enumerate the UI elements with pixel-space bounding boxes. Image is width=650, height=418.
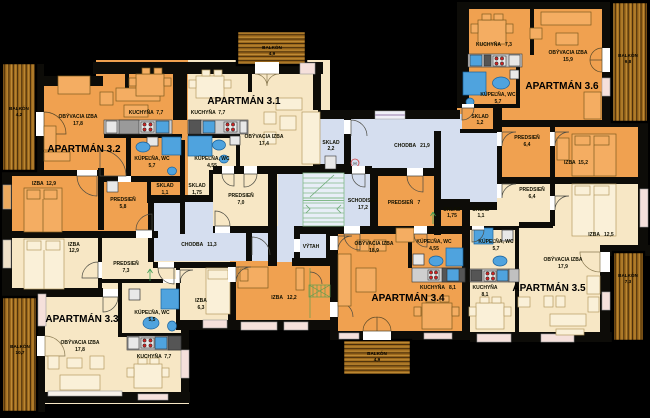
svg-text:BALKÓN: BALKÓN <box>262 43 282 50</box>
svg-text:PREDSIEŇ: PREDSIEŇ <box>228 191 254 199</box>
svg-text:PREDSIEŇ 7: PREDSIEŇ 7 <box>388 198 421 206</box>
svg-text:KÚPEĽŇA, WC: KÚPEĽŇA, WC <box>478 237 514 245</box>
svg-text:15,9: 15,9 <box>563 57 573 63</box>
svg-text:6,4: 6,4 <box>524 142 531 148</box>
svg-text:5,5: 5,5 <box>149 317 156 323</box>
svg-text:KUCHYŇA 7,3: KUCHYŇA 7,3 <box>476 40 512 48</box>
svg-text:PREDSIEŇ: PREDSIEŇ <box>514 133 540 141</box>
svg-text:CHODBA 21,9: CHODBA 21,9 <box>394 143 430 149</box>
svg-text:BALKÓN: BALKÓN <box>618 271 638 278</box>
svg-text:APARTMÁN 3.1: APARTMÁN 3.1 <box>207 94 281 107</box>
svg-text:KUCHYŇA: KUCHYŇA <box>473 283 498 291</box>
svg-text:1,1: 1,1 <box>162 190 169 196</box>
svg-text:KUCHYŇA 7,7: KUCHYŇA 7,7 <box>137 352 172 360</box>
svg-text:APARTMÁN 3.4: APARTMÁN 3.4 <box>371 291 445 304</box>
svg-text:1,2: 1,2 <box>477 120 484 126</box>
svg-text:4,55: 4,55 <box>429 246 439 252</box>
svg-text:7,3: 7,3 <box>625 279 632 284</box>
svg-text:SKLAD: SKLAD <box>188 183 206 189</box>
svg-text:7,0: 7,0 <box>238 200 245 206</box>
svg-text:KÚPEĽŇA, WC: KÚPEĽŇA, WC <box>134 154 170 162</box>
svg-text:7,3: 7,3 <box>123 268 130 274</box>
svg-text:17,8: 17,8 <box>75 347 85 353</box>
svg-text:8,1: 8,1 <box>482 292 489 298</box>
svg-text:4,9: 4,9 <box>269 51 276 56</box>
svg-text:1,1: 1,1 <box>478 213 485 219</box>
svg-text:APARTMÁN 3.3: APARTMÁN 3.3 <box>45 312 119 325</box>
svg-text:17,4: 17,4 <box>259 141 269 147</box>
svg-text:4,9: 4,9 <box>374 357 381 362</box>
svg-text:17,2: 17,2 <box>358 205 368 211</box>
svg-text:VÝTAH: VÝTAH <box>303 243 320 250</box>
svg-text:OBÝVACIA IZBA: OBÝVACIA IZBA <box>544 256 583 263</box>
svg-text:17,8: 17,8 <box>73 121 83 127</box>
svg-text:APARTMÁN 3.5: APARTMÁN 3.5 <box>512 281 586 294</box>
svg-text:17,9: 17,9 <box>558 264 568 270</box>
svg-text:BALKÓN: BALKÓN <box>367 349 387 356</box>
svg-text:KUCHYŇA 7,7: KUCHYŇA 7,7 <box>191 108 226 116</box>
svg-text:H: H <box>353 161 356 166</box>
svg-text:1,75: 1,75 <box>192 190 202 196</box>
svg-text:APARTMÁN 3.2: APARTMÁN 3.2 <box>47 142 121 155</box>
svg-text:KÚPEĽŇA, WC: KÚPEĽŇA, WC <box>416 237 452 245</box>
svg-text:6,4: 6,4 <box>529 194 536 200</box>
svg-text:5,7: 5,7 <box>495 99 502 105</box>
svg-text:PREDSIEŇ: PREDSIEŇ <box>519 185 545 193</box>
svg-text:OBÝVACIA IZBA: OBÝVACIA IZBA <box>549 49 588 56</box>
svg-text:4,2: 4,2 <box>16 112 23 117</box>
svg-text:5,8: 5,8 <box>120 204 127 210</box>
svg-text:BALKÓN: BALKÓN <box>9 104 29 111</box>
svg-text:KUCHYŇA 8,1: KUCHYŇA 8,1 <box>420 283 456 291</box>
svg-text:BALKÓN: BALKÓN <box>10 342 30 349</box>
svg-text:IZBA: IZBA <box>195 298 207 304</box>
svg-text:5,7: 5,7 <box>149 163 156 169</box>
svg-text:PREDSIEŇ: PREDSIEŇ <box>113 259 139 267</box>
svg-text:SCHODISKO: SCHODISKO <box>348 198 378 204</box>
svg-text:6,3: 6,3 <box>198 305 205 311</box>
svg-text:APARTMÁN 3.6: APARTMÁN 3.6 <box>525 79 599 92</box>
svg-text:10,7: 10,7 <box>16 350 25 355</box>
svg-text:IZBA 12,5: IZBA 12,5 <box>588 232 614 238</box>
svg-text:CHODBA 11,3: CHODBA 11,3 <box>181 242 217 248</box>
svg-text:IZBA 12,2: IZBA 12,2 <box>271 295 297 301</box>
svg-text:12,9: 12,9 <box>69 248 79 254</box>
svg-text:IZBA 12,9: IZBA 12,9 <box>32 181 56 187</box>
svg-text:SKLAD: SKLAD <box>156 183 174 189</box>
svg-text:KÚPEĽŇA, WC: KÚPEĽŇA, WC <box>480 90 516 98</box>
svg-text:4,55: 4,55 <box>207 163 217 169</box>
svg-text:OBÝVACIA IZBA: OBÝVACIA IZBA <box>245 133 284 140</box>
svg-text:PREDSIEŇ: PREDSIEŇ <box>110 195 136 203</box>
svg-text:BALKÓN: BALKÓN <box>618 51 638 58</box>
svg-text:KÚPEĽŇA, WC: KÚPEĽŇA, WC <box>194 154 230 162</box>
svg-text:KUCHYŇA 7,7: KUCHYŇA 7,7 <box>129 108 164 116</box>
svg-text:OBÝVACIA IZBA: OBÝVACIA IZBA <box>61 339 100 346</box>
svg-text:9,8: 9,8 <box>625 59 632 64</box>
svg-text:OBÝVACIA IZBA: OBÝVACIA IZBA <box>355 240 394 247</box>
svg-text:OBÝVACIA IZBA: OBÝVACIA IZBA <box>59 113 98 120</box>
svg-text:2,2: 2,2 <box>328 146 335 152</box>
svg-text:5,7: 5,7 <box>493 246 500 252</box>
svg-text:18,9: 18,9 <box>369 248 379 254</box>
svg-text:IZBA 15,2: IZBA 15,2 <box>564 160 588 166</box>
svg-text:KÚPEĽŇA, WC: KÚPEĽŇA, WC <box>134 308 170 316</box>
svg-text:1,75: 1,75 <box>447 213 457 219</box>
